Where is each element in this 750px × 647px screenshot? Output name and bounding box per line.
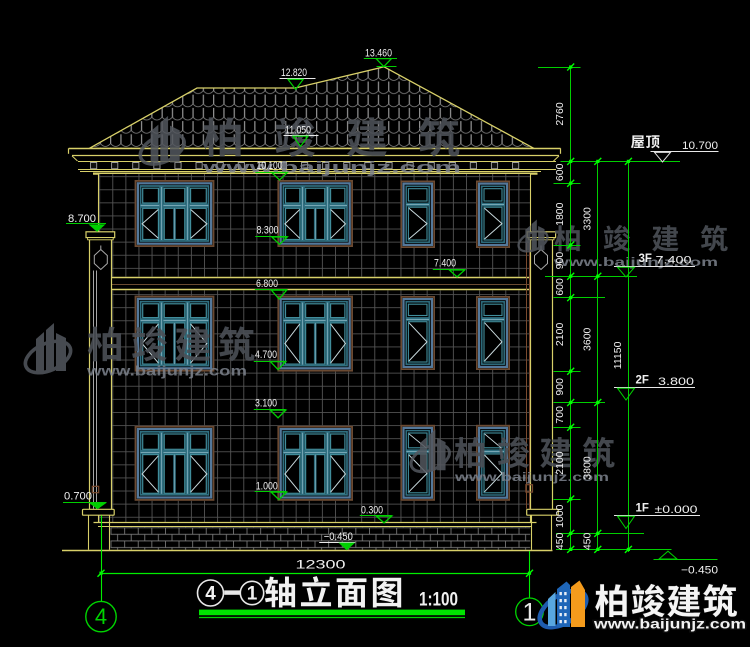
svg-text:1800: 1800 (554, 202, 566, 226)
svg-text:−0.450: −0.450 (324, 531, 353, 543)
svg-text:3.800: 3.800 (658, 376, 694, 388)
svg-text:11150: 11150 (612, 341, 624, 369)
svg-text:4: 4 (95, 604, 107, 629)
svg-text:11.050: 11.050 (285, 124, 311, 136)
svg-text:7.400: 7.400 (656, 255, 692, 267)
svg-text:0.300: 0.300 (361, 505, 383, 517)
svg-text:www.baijunjz.com: www.baijunjz.com (86, 364, 247, 379)
svg-text:12.820: 12.820 (281, 67, 307, 79)
svg-text:2F: 2F (636, 375, 649, 387)
svg-text:1:100: 1:100 (419, 589, 458, 611)
svg-text:3600: 3600 (581, 327, 593, 351)
svg-text:3800: 3800 (581, 456, 593, 480)
svg-text:900: 900 (554, 252, 566, 270)
svg-text:600: 600 (554, 278, 566, 296)
svg-text:±0.000: ±0.000 (655, 504, 698, 516)
svg-text:www.baijunjz.com: www.baijunjz.com (552, 257, 718, 269)
svg-text:3.100: 3.100 (255, 398, 277, 410)
svg-text:0.700: 0.700 (64, 491, 92, 503)
svg-text:www.baijunjz.com: www.baijunjz.com (593, 617, 746, 632)
svg-text:450: 450 (581, 532, 593, 550)
svg-text:700: 700 (554, 406, 566, 424)
svg-text:2760: 2760 (554, 102, 566, 126)
svg-text:900: 900 (554, 378, 566, 396)
svg-text:4: 4 (205, 584, 216, 605)
svg-text:www.baijunjz.com: www.baijunjz.com (201, 160, 461, 177)
svg-text:1: 1 (247, 584, 258, 605)
svg-text:1F: 1F (636, 503, 649, 515)
svg-text:600: 600 (554, 163, 566, 181)
svg-text:4.700: 4.700 (255, 349, 277, 361)
svg-text:3300: 3300 (581, 207, 593, 231)
svg-text:1.000: 1.000 (256, 481, 278, 493)
svg-text:−0.450: −0.450 (681, 565, 718, 577)
svg-text:3F: 3F (639, 253, 652, 265)
svg-text:450: 450 (554, 532, 566, 550)
svg-text:12300: 12300 (296, 560, 346, 572)
svg-text:1: 1 (523, 599, 537, 627)
svg-text:2100: 2100 (554, 323, 566, 347)
svg-text:1000: 1000 (554, 504, 566, 528)
svg-text:2100: 2100 (554, 451, 566, 475)
svg-text:10.100: 10.100 (257, 160, 283, 172)
svg-text:7.400: 7.400 (434, 258, 456, 270)
svg-text:6.800: 6.800 (256, 278, 278, 290)
svg-text:10.700: 10.700 (682, 140, 718, 152)
svg-text:8.300: 8.300 (257, 224, 279, 236)
svg-text:13.460: 13.460 (365, 48, 392, 60)
